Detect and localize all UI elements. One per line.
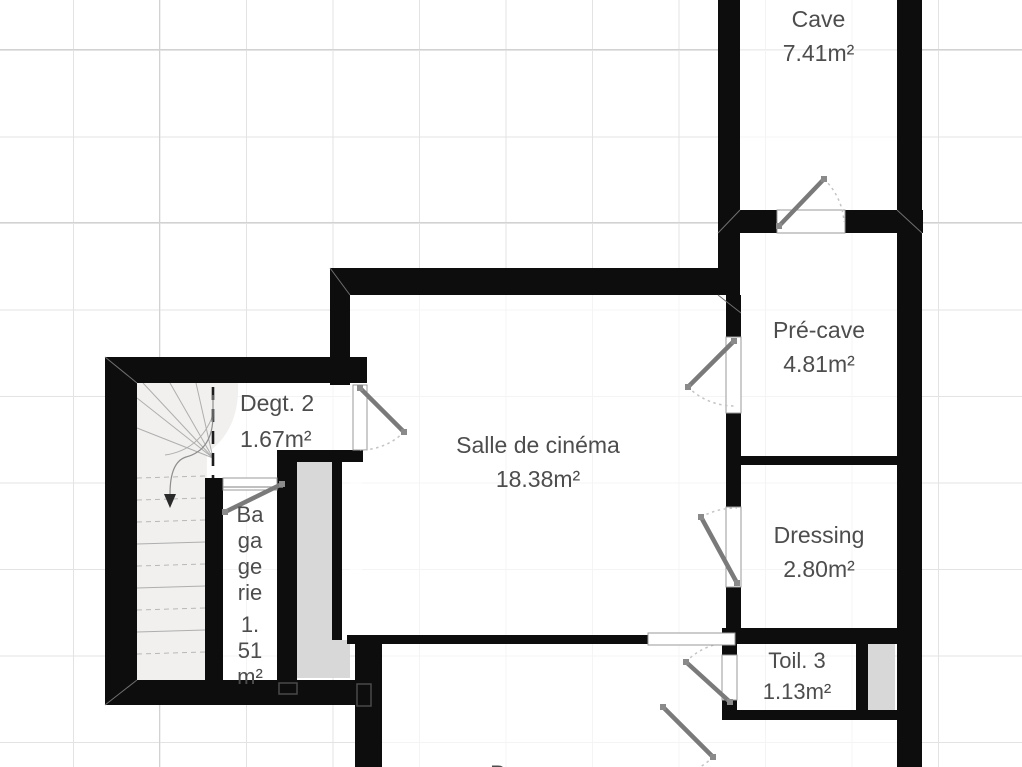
wall [718,0,740,295]
wall [722,710,897,720]
room-toil3-floor [737,644,856,710]
wall [722,628,897,644]
room-cinema-floor [350,295,726,635]
room-bottom-floor [382,644,722,767]
room-bottom-floor [722,720,897,767]
room-pre-cave-floor [741,233,897,456]
duct-shaft [297,640,350,678]
wall [722,644,737,655]
wall [277,450,363,462]
wall [105,680,380,705]
wall [718,210,777,233]
room-bagagerie-floor [223,490,277,682]
door-opening [648,633,735,645]
wall [105,357,367,383]
door-opening [777,210,845,233]
floor-plan-canvas: Cave 7.41m² Pré-cave 4.81m² Dressing 2.8… [0,0,1022,767]
wall [897,0,922,767]
wall [856,644,868,710]
wall [332,462,342,640]
wall [105,357,137,705]
wall [726,587,741,628]
room-cave-floor [740,0,897,210]
wall [845,210,923,233]
wall [726,295,741,337]
room-degt2-floor [223,450,277,478]
wall [737,456,897,465]
room-dressing-floor [741,465,897,628]
duct-shaft [297,462,332,640]
wall [355,640,382,767]
wall [330,268,740,295]
door-opening [722,655,737,700]
floor-plan-svg [0,0,1022,767]
wall [347,635,648,644]
wall [205,478,223,682]
room-cinema-floor [342,462,362,635]
duct-shaft [868,644,895,710]
